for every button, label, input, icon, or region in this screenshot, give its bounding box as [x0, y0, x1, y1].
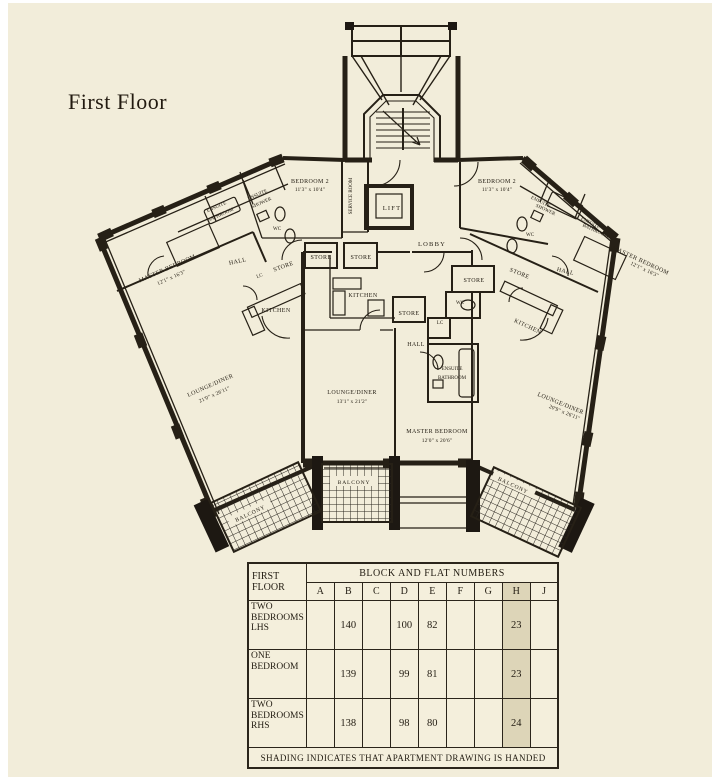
label-ensuite-bath-center-2: BATHROOM: [438, 376, 467, 381]
flat-number-cell: [530, 699, 558, 748]
stair-tower: [345, 26, 458, 162]
flat-number-cell: 139: [334, 650, 362, 699]
flat-number-cell: [474, 601, 502, 650]
flat-number-cell: 98: [390, 699, 418, 748]
col-header-c: C: [362, 583, 390, 601]
flat-number-cell: [306, 601, 334, 650]
label-hall-center: HALL: [407, 342, 425, 348]
label-lobby: LOBBY: [418, 241, 446, 248]
flat-number-cell: 23: [502, 601, 530, 650]
flat-number-cell: 138: [334, 699, 362, 748]
label-bedroom2-right-dims: 11'3" x 10'4": [482, 187, 512, 193]
flat-number-cell: 23: [502, 650, 530, 699]
table-corner-line2: FLOOR: [252, 582, 303, 594]
label-lift: LIFT: [383, 205, 402, 212]
label-master-center: MASTER BEDROOM: [406, 429, 468, 435]
label-bedroom2-left: BEDROOM 2: [291, 179, 329, 185]
label-kitchen-right: KITCHEN: [513, 318, 542, 336]
row-label: ONE BEDROOM: [248, 650, 306, 699]
table-footer-row: SHADING INDICATES THAT APARTMENT DRAWING…: [248, 748, 558, 769]
table-row: TWO BEDROOMS LHS 140 100 82 23: [248, 601, 558, 650]
flat-number-cell: 81: [418, 650, 446, 699]
flat-number-cell: [362, 601, 390, 650]
label-master-right: MASTER BEDROOM: [611, 245, 669, 277]
label-store-center: STORE: [399, 311, 420, 317]
flat-number-cell: [474, 650, 502, 699]
row-label: TWO BEDROOMS RHS: [248, 699, 306, 748]
floor-plan: BALCONY BALCONY BALCONY SERVICE ROOM LIF…: [8, 3, 712, 560]
label-kitchen-left: KITCHEN: [261, 308, 290, 314]
table-corner-cell: FIRST FLOOR: [248, 563, 306, 601]
row-label: TWO BEDROOMS LHS: [248, 601, 306, 650]
label-bedroom2-right: BEDROOM 2: [478, 179, 516, 185]
table-footer-note: SHADING INDICATES THAT APARTMENT DRAWING…: [248, 748, 558, 769]
col-header-b: B: [334, 583, 362, 601]
flat-number-cell: 82: [418, 601, 446, 650]
label-ensuite-bath-center-1: ENSUITE: [442, 367, 463, 372]
col-header-a: A: [306, 583, 334, 601]
col-header-f: F: [446, 583, 474, 601]
flat-number-cell: [306, 699, 334, 748]
label-store-left-angled: STORE: [273, 261, 295, 274]
col-header-d: D: [390, 583, 418, 601]
flat-number-cell: 99: [390, 650, 418, 699]
label-wc-right: WC: [526, 233, 535, 238]
table-header-row: FIRST FLOOR BLOCK AND FLAT NUMBERS: [248, 563, 558, 583]
label-lc-center: LC: [437, 321, 444, 326]
label-hall-left: HALL: [229, 257, 247, 267]
label-wc-left: WC: [273, 227, 282, 232]
flat-number-cell: 80: [418, 699, 446, 748]
balcony-right: BALCONY: [471, 467, 581, 557]
table-corner-line1: FIRST: [252, 571, 303, 583]
flat-number-cell: 140: [334, 601, 362, 650]
col-header-h: H: [502, 583, 530, 601]
flat-number-cell: 100: [390, 601, 418, 650]
flat-number-cell: [362, 650, 390, 699]
label-store-right: STORE: [509, 267, 531, 280]
label-bedroom2-left-dims: 11'3" x 10'4": [295, 187, 325, 193]
balcony-piers: [194, 22, 595, 553]
label-kitchen-center: KITCHEN: [348, 293, 377, 299]
flat-number-cell: 24: [502, 699, 530, 748]
label-master-center-dims: 12'0" x 20'6": [422, 438, 453, 444]
scanned-page: First Floor: [8, 3, 712, 777]
label-lc-left: LC: [256, 273, 264, 280]
col-header-g: G: [474, 583, 502, 601]
balconies: BALCONY BALCONY BALCONY: [194, 22, 595, 557]
table-span-header: BLOCK AND FLAT NUMBERS: [306, 563, 558, 583]
flat-number-cell: [446, 601, 474, 650]
label-store-a: STORE: [311, 255, 332, 261]
balcony-left: BALCONY: [211, 462, 321, 552]
table-row: TWO BEDROOMS RHS 138 98 80 24: [248, 699, 558, 748]
label-store-top: STORE: [464, 278, 485, 284]
col-header-e: E: [418, 583, 446, 601]
label-lounge-center: LOUNGE/DINER: [327, 390, 376, 396]
flat-number-cell: [306, 650, 334, 699]
label-service-room: SERVICE ROOM: [349, 177, 354, 214]
table-row: ONE BEDROOM 139 99 81 23: [248, 650, 558, 699]
flat-number-cell: [530, 650, 558, 699]
label-store-b: STORE: [351, 255, 372, 261]
flat-numbers-table: FIRST FLOOR BLOCK AND FLAT NUMBERS A B C…: [247, 562, 559, 769]
walls: [99, 56, 616, 528]
label-wc-center: WC: [456, 301, 465, 306]
col-header-j: J: [530, 583, 558, 601]
flat-number-cell: [446, 699, 474, 748]
balcony-center: BALCONY: [322, 464, 392, 522]
flat-number-cell: [362, 699, 390, 748]
flat-number-cell: [446, 650, 474, 699]
label-hall-right: HALL: [556, 267, 575, 277]
fixtures: [167, 191, 627, 397]
flat-number-cell: [474, 699, 502, 748]
label-lounge-center-dims: 13'1" x 21'2": [337, 399, 368, 405]
flat-number-cell: [530, 601, 558, 650]
balcony-center-label: BALCONY: [338, 480, 371, 486]
